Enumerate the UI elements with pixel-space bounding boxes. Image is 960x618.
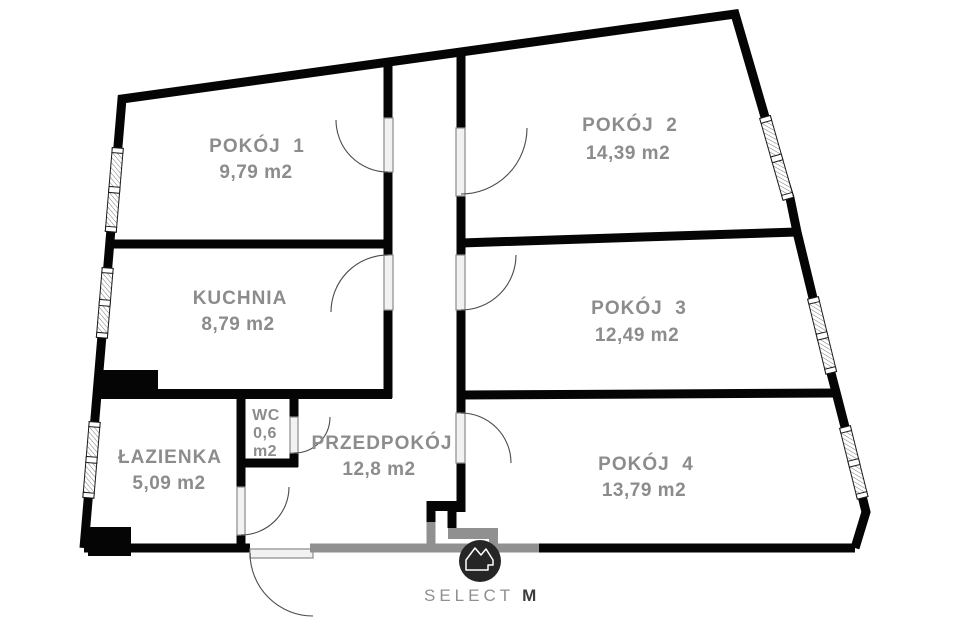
- door-arc-pokoj4: [461, 413, 511, 463]
- room-lazienka-name: ŁAZIENKA: [118, 447, 222, 468]
- door-arc-lazienka: [241, 487, 289, 535]
- floorplan-svg: POKÓJ 1 9,79 m2 POKÓJ 2 14,39 m2 KUCHNIA…: [0, 0, 960, 618]
- door-leaf-pokoj2: [456, 128, 465, 196]
- room-lazienka-area: 5,09 m2: [132, 473, 205, 494]
- door-leaf-pokoj1: [384, 118, 393, 172]
- door-leaf-entrance: [250, 549, 313, 558]
- walls: [84, 14, 866, 552]
- room-pokoj2-name: POKÓJ 2: [582, 114, 678, 136]
- door-leaf-kuchnia: [384, 255, 393, 310]
- shaft-block-bottom: [88, 527, 131, 556]
- door-leaf-lazienka: [237, 487, 245, 535]
- watermark-pipes: [310, 522, 539, 554]
- room-pokoj1-name: POKÓJ 1: [209, 135, 305, 157]
- watermark-bottom-bar: [310, 544, 539, 553]
- brand-text: SELECTM: [424, 586, 540, 605]
- window: [808, 297, 837, 374]
- room-wc-area-unit: m2: [253, 443, 277, 460]
- door-arc-pokoj2: [461, 128, 527, 194]
- window: [105, 148, 123, 233]
- door-arc-entrance: [250, 553, 313, 616]
- door-leaf-pokoj4: [456, 413, 465, 463]
- room-labels: POKÓJ 1 9,79 m2 POKÓJ 2 14,39 m2 KUCHNIA…: [118, 114, 694, 501]
- door-leaf-wc: [290, 417, 298, 453]
- window: [83, 422, 100, 499]
- room-przedpokoj-area: 12,8 m2: [342, 459, 415, 480]
- room-wc-area-value: 0,6: [253, 425, 277, 442]
- window: [840, 426, 868, 499]
- room-pokoj4-name: POKÓJ 4: [598, 453, 694, 475]
- door-arc-pokoj1: [336, 120, 388, 172]
- room-kuchnia-area: 8,79 m2: [201, 314, 274, 335]
- window: [96, 268, 113, 339]
- room-pokoj3-name: POKÓJ 3: [591, 297, 687, 319]
- room-pokoj1-area: 9,79 m2: [219, 162, 292, 183]
- room-wc-name: WC: [252, 407, 280, 424]
- room-kuchnia-name: KUCHNIA: [193, 288, 288, 309]
- room-pokoj4-area: 13,79 m2: [602, 480, 686, 501]
- door-arc-pokoj3: [461, 255, 516, 310]
- door-arc-kuchnia: [331, 255, 388, 312]
- room-pokoj3-area: 12,49 m2: [595, 325, 679, 346]
- window: [760, 115, 794, 200]
- room-przedpokoj-name: PRZEDPOKÓJ: [312, 432, 453, 454]
- room-pokoj2-area: 14,39 m2: [586, 143, 670, 164]
- wall-pokoj2-pokoj3: [461, 232, 797, 243]
- floorplan-page: POKÓJ 1 9,79 m2 POKÓJ 2 14,39 m2 KUCHNIA…: [0, 0, 960, 618]
- wall-pokoj3-pokoj4: [461, 393, 839, 395]
- watermark-jog-vertical: [427, 522, 436, 552]
- shaft-block-top: [99, 370, 158, 398]
- door-leaf-pokoj3: [456, 255, 465, 310]
